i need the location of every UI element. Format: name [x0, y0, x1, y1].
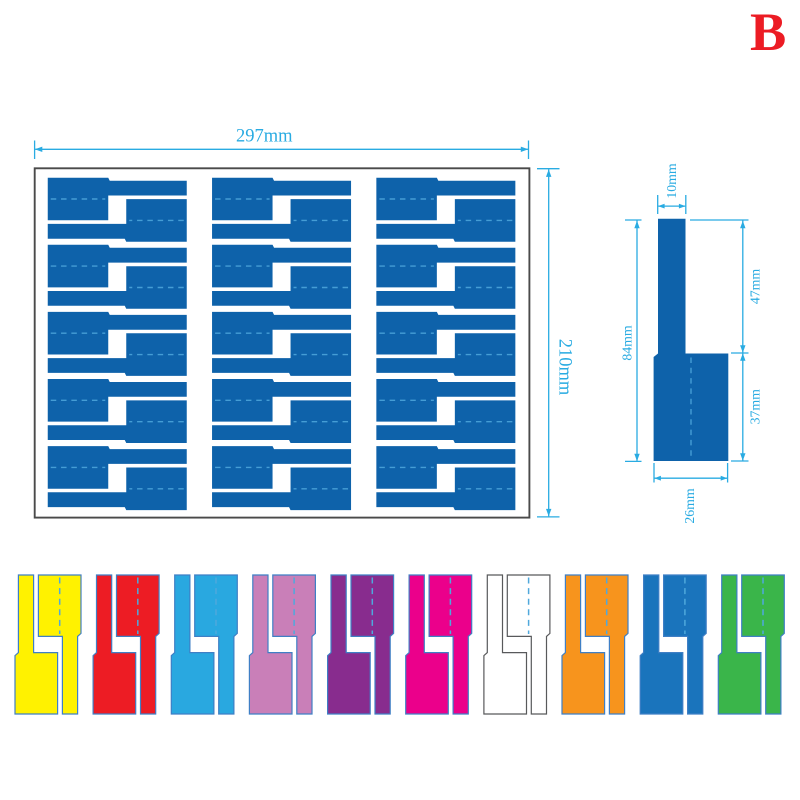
svg-text:47mm: 47mm	[747, 269, 762, 305]
svg-text:210mm: 210mm	[554, 339, 574, 396]
svg-text:B: B	[750, 2, 786, 62]
svg-text:10mm: 10mm	[664, 163, 679, 199]
svg-text:26mm: 26mm	[682, 488, 697, 524]
svg-text:84mm: 84mm	[619, 325, 634, 361]
svg-text:37mm: 37mm	[747, 389, 762, 425]
svg-text:297mm: 297mm	[236, 127, 293, 147]
